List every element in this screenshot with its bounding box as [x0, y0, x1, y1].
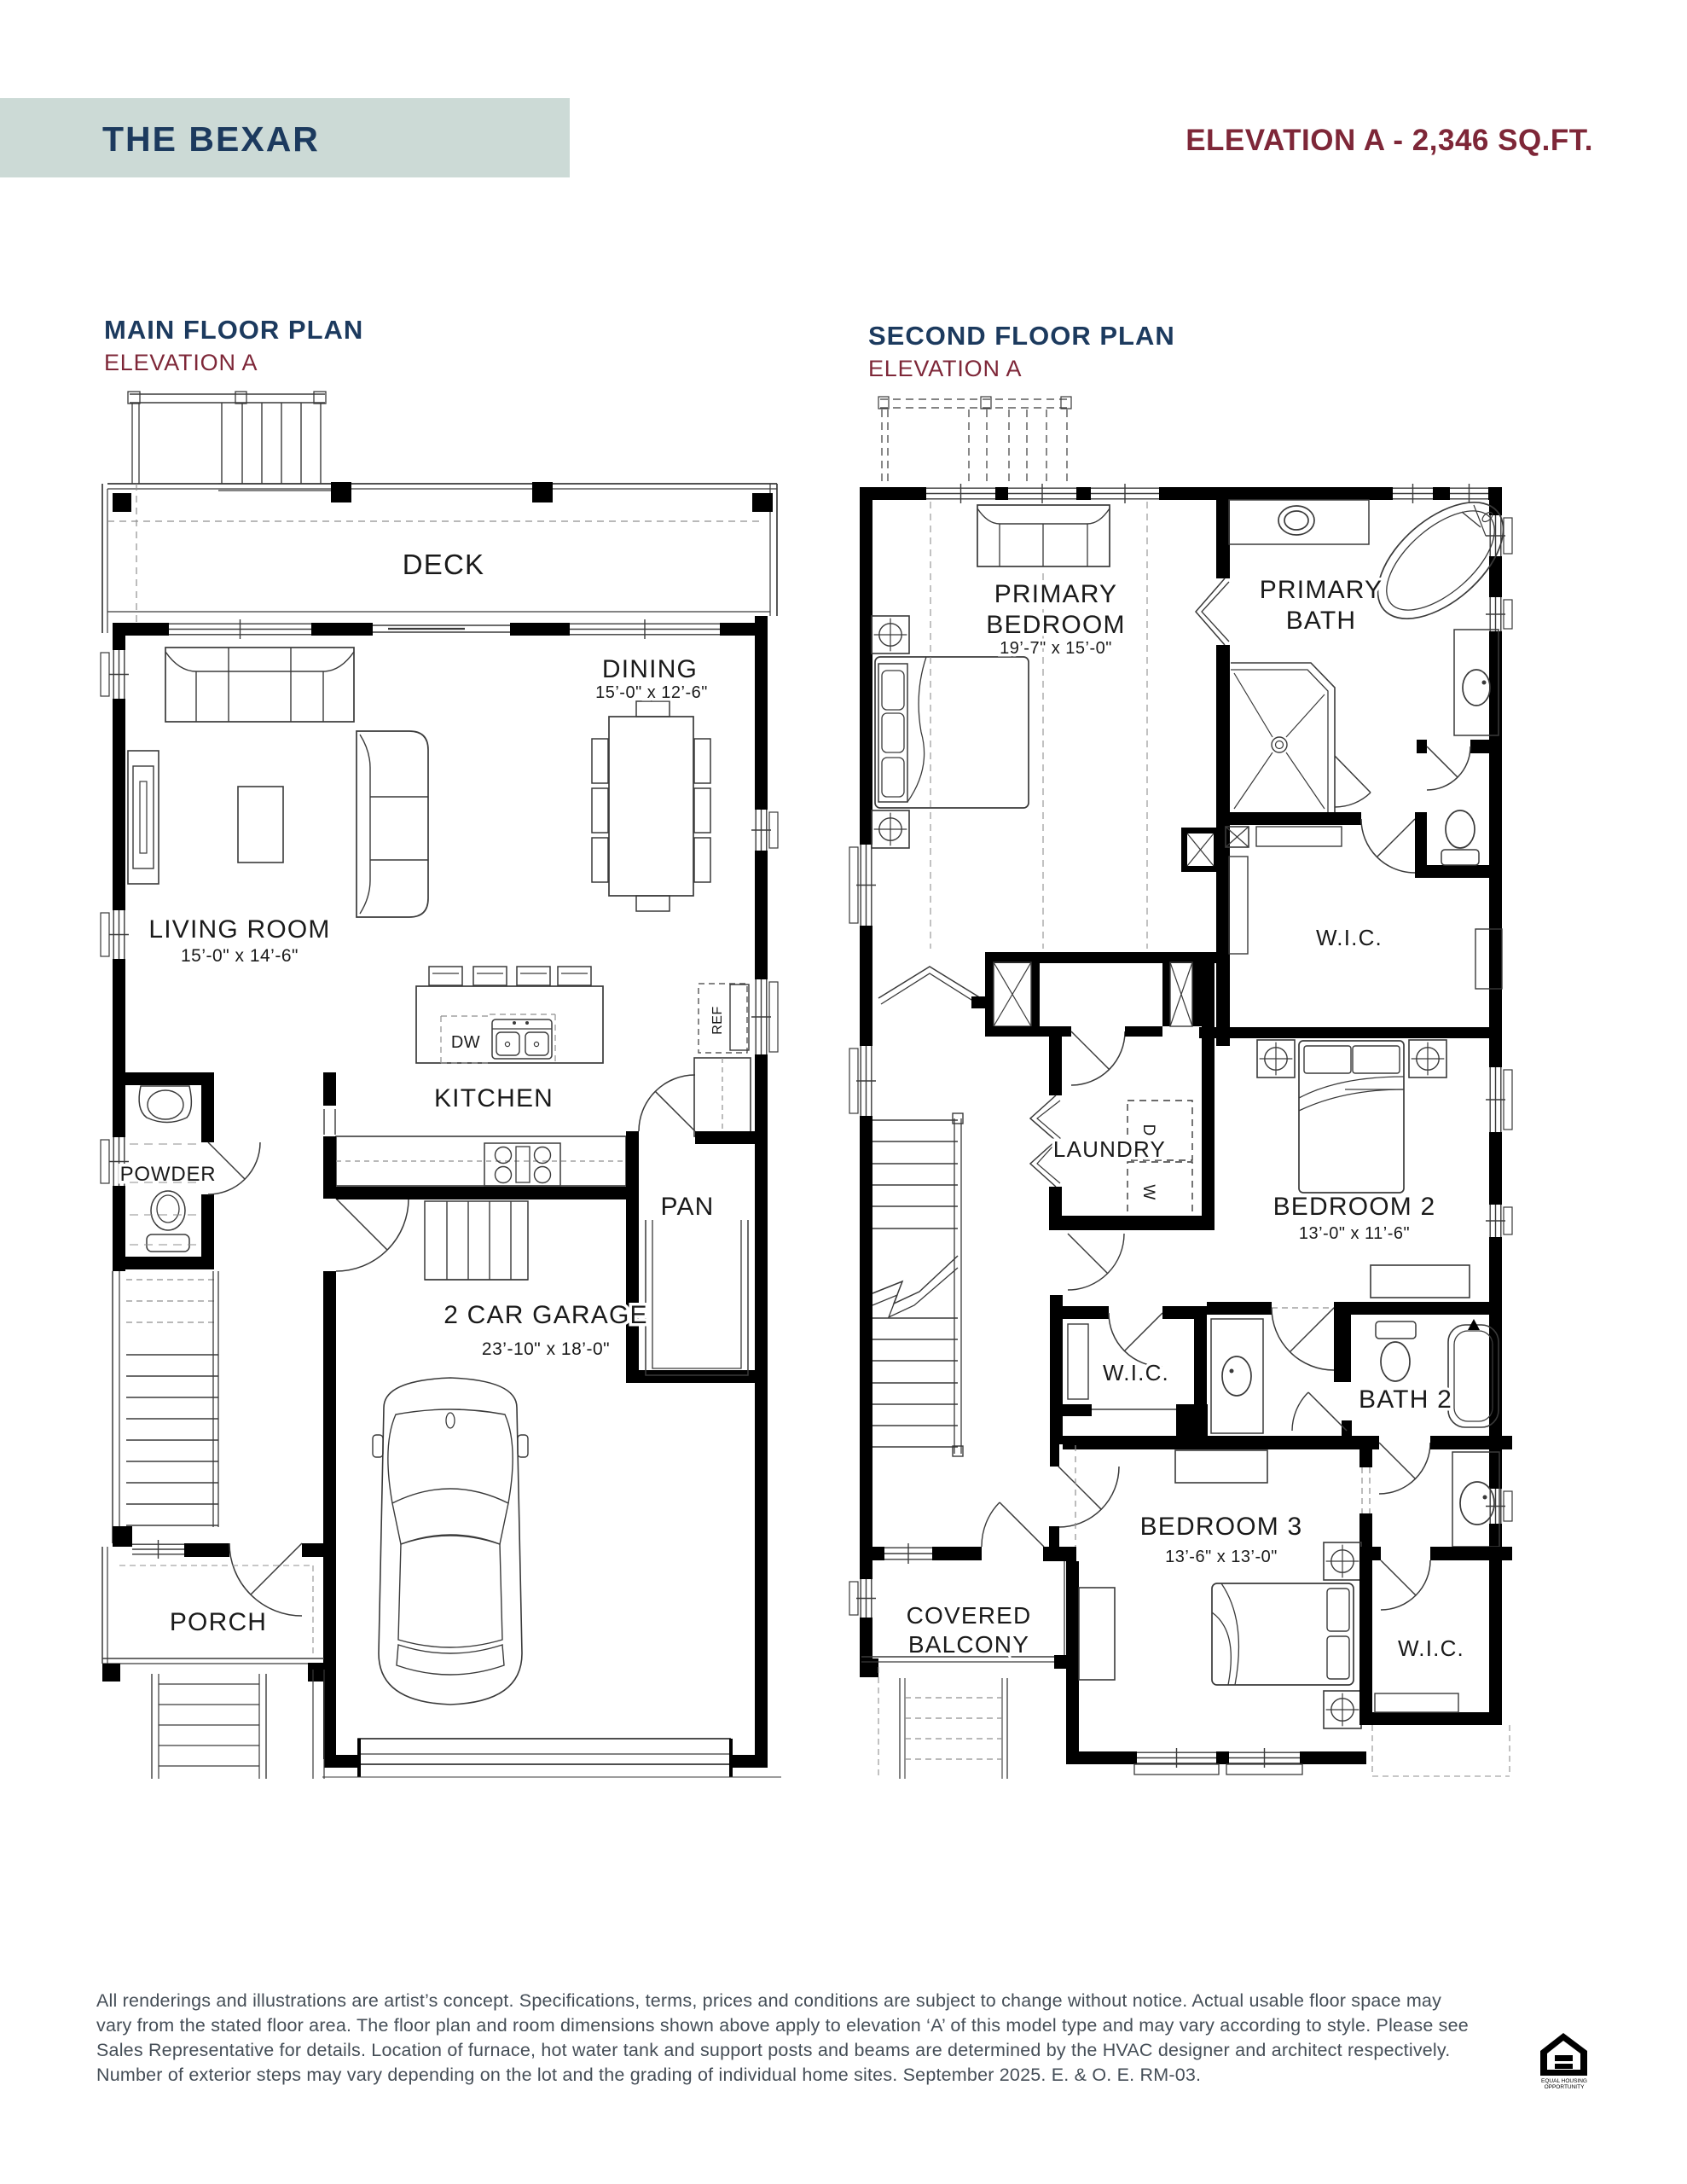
- svg-text:All renderings and illustratio: All renderings and illustrations are art…: [96, 1990, 1441, 2011]
- svg-text:23’-10" x 18’-0": 23’-10" x 18’-0": [482, 1339, 610, 1359]
- svg-text:SECOND FLOOR PLAN: SECOND FLOOR PLAN: [868, 321, 1175, 351]
- svg-text:Number of exterior steps may v: Number of exterior steps may vary depend…: [96, 2065, 1201, 2085]
- svg-text:PRIMARY: PRIMARY: [1260, 576, 1383, 604]
- svg-text:PAN: PAN: [660, 1193, 714, 1221]
- svg-text:DECK: DECK: [403, 549, 485, 580]
- svg-text:THE BEXAR: THE BEXAR: [102, 119, 320, 159]
- svg-text:LIVING ROOM: LIVING ROOM: [148, 915, 330, 944]
- svg-text:BEDROOM 2: BEDROOM 2: [1273, 1193, 1436, 1221]
- svg-text:BEDROOM 3: BEDROOM 3: [1140, 1513, 1303, 1541]
- svg-text:MAIN FLOOR PLAN: MAIN FLOOR PLAN: [104, 315, 363, 345]
- svg-text:BATH 2: BATH 2: [1359, 1385, 1452, 1414]
- svg-text:W.I.C.: W.I.C.: [1103, 1360, 1169, 1385]
- svg-text:13’-0" x 11’-6": 13’-0" x 11’-6": [1299, 1224, 1410, 1243]
- svg-text:DINING: DINING: [602, 655, 698, 683]
- svg-text:Sales Representative for detai: Sales Representative for details. Locati…: [96, 2040, 1450, 2060]
- svg-text:BALCONY: BALCONY: [908, 1631, 1029, 1658]
- svg-text:D: D: [1139, 1124, 1157, 1137]
- svg-text:13’-6" x 13’-0": 13’-6" x 13’-0": [1165, 1548, 1278, 1566]
- svg-text:COVERED: COVERED: [907, 1602, 1032, 1629]
- svg-text:DW: DW: [451, 1033, 480, 1052]
- svg-text:OPPORTUNITY: OPPORTUNITY: [1545, 2084, 1585, 2090]
- svg-text:BATH: BATH: [1286, 607, 1357, 635]
- svg-text:15’-0" x 14’-6": 15’-0" x 14’-6": [181, 946, 299, 966]
- svg-text:PORCH: PORCH: [170, 1608, 267, 1636]
- svg-text:EQUAL HOUSING: EQUAL HOUSING: [1541, 2078, 1587, 2084]
- svg-text:REF: REF: [710, 1006, 725, 1035]
- svg-text:W.I.C.: W.I.C.: [1398, 1635, 1464, 1661]
- svg-text:ELEVATION A: ELEVATION A: [104, 350, 258, 375]
- svg-text:LAUNDRY: LAUNDRY: [1053, 1136, 1166, 1162]
- svg-text:W: W: [1139, 1184, 1157, 1200]
- svg-text:W.I.C.: W.I.C.: [1316, 925, 1383, 950]
- svg-text:ELEVATION A - 2,346 SQ.FT.: ELEVATION A - 2,346 SQ.FT.: [1186, 124, 1593, 157]
- svg-text:PRIMARY: PRIMARY: [994, 580, 1118, 608]
- svg-text:vary from the stated floor are: vary from the stated floor area. The flo…: [96, 2015, 1469, 2036]
- svg-text:ELEVATION A: ELEVATION A: [868, 356, 1022, 381]
- svg-text:2 CAR GARAGE: 2 CAR GARAGE: [443, 1301, 647, 1329]
- svg-text:KITCHEN: KITCHEN: [434, 1084, 554, 1112]
- svg-text:BEDROOM: BEDROOM: [986, 611, 1125, 639]
- svg-text:15’-0" x 12’-6": 15’-0" x 12’-6": [595, 683, 708, 702]
- svg-text:19’-7" x 15’-0": 19’-7" x 15’-0": [1000, 639, 1112, 658]
